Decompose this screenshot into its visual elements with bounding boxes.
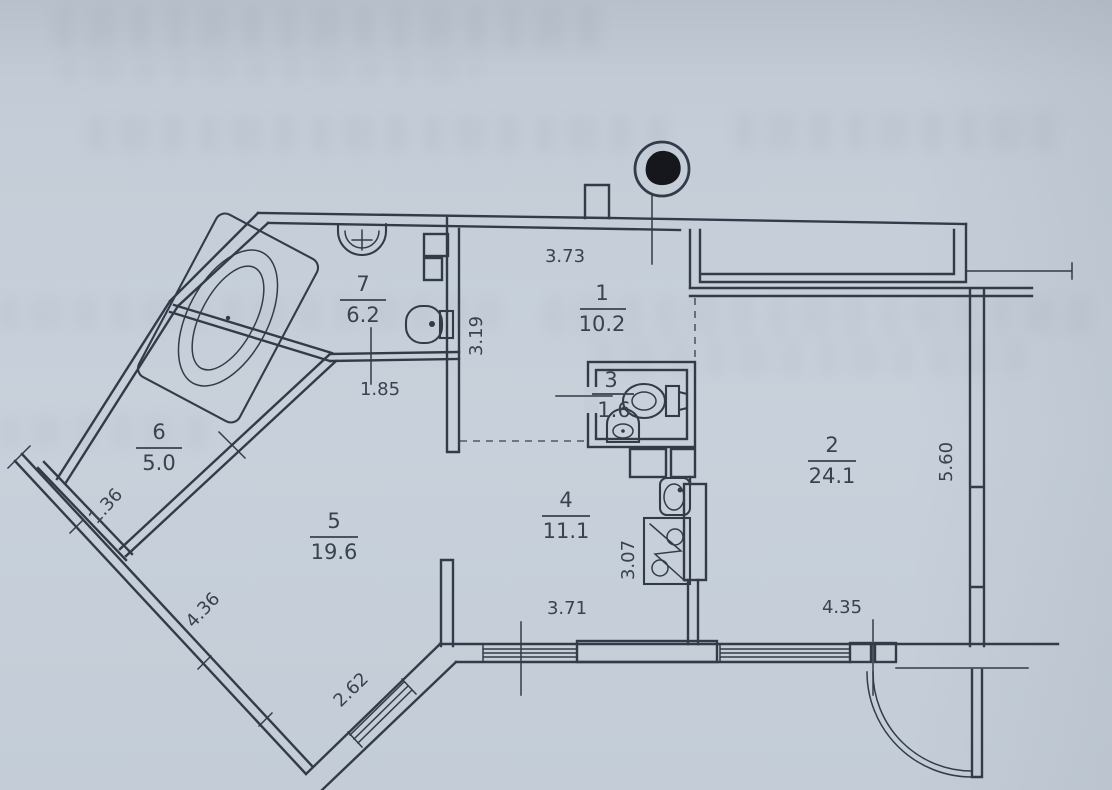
balcony-door (850, 643, 982, 777)
window-living (720, 644, 850, 662)
room-boundary-dashed (460, 298, 695, 452)
room-label-7: 7 6.2 (340, 272, 386, 327)
dimension-living-wall: 4.35 (822, 597, 862, 618)
stamp-seal (635, 142, 689, 196)
floor-plan-drawing: 1 10.2 2 24.1 3 1.6 4 11.1 5 19.6 6 5.0 (0, 0, 1112, 790)
door-swing-arc (867, 672, 972, 777)
room-area: 5.0 (142, 451, 175, 475)
dimension-outer-wall: 4.36 (182, 588, 225, 632)
wall-projection (585, 185, 609, 218)
room-label-4: 4 11.1 (542, 488, 590, 543)
dimension-loggia-end: 1.36 (85, 484, 127, 528)
room-area: 6.2 (346, 303, 379, 327)
door-swing-arc (873, 672, 972, 771)
room-label-5: 5 19.6 (310, 509, 358, 564)
room-number: 7 (356, 272, 369, 296)
door-leaf (972, 670, 982, 777)
room-label-3: 3 1.6 (592, 368, 634, 422)
room-area: 19.6 (311, 540, 358, 564)
cabinet (671, 449, 695, 477)
loggia-top (700, 224, 966, 282)
duct-shaft (424, 234, 448, 280)
door-opening (584, 387, 598, 413)
room-number: 4 (559, 488, 572, 512)
wall-pier (684, 484, 706, 580)
room-label-6: 6 5.0 (136, 420, 182, 475)
window-kitchen (483, 644, 577, 662)
dimension-top-wall: 3.73 (545, 246, 585, 267)
room-area: 24.1 (809, 464, 856, 488)
washbasin-icon (338, 224, 386, 255)
dimension-bay-wall: 2.62 (329, 669, 372, 712)
room-label-1: 1 10.2 (579, 281, 626, 336)
wall-lines (8, 185, 1072, 790)
dimension-kitchen-wall: 3.71 (547, 598, 587, 619)
floor-plan-document: 1 10.2 2 24.1 3 1.6 4 11.1 5 19.6 6 5.0 (0, 0, 1112, 790)
dimension-living-depth: 5.60 (936, 442, 957, 482)
room-number: 5 (327, 509, 340, 533)
cabinet (630, 449, 666, 477)
room-number: 2 (825, 433, 838, 457)
room-area: 11.1 (543, 519, 590, 543)
room-number: 3 (604, 368, 617, 392)
room-area: 10.2 (579, 312, 626, 336)
room-area: 1.6 (597, 398, 630, 422)
room-number: 1 (595, 281, 608, 305)
dimension-bath-wall: 1.85 (360, 379, 400, 400)
dimension-kitchen-depth: 3.07 (618, 540, 639, 580)
room-label-2: 2 24.1 (808, 433, 856, 488)
dimension-hall-depth: 3.19 (466, 316, 487, 356)
door-jamb (875, 643, 896, 662)
door-jamb (850, 643, 871, 662)
room-number: 6 (152, 420, 165, 444)
